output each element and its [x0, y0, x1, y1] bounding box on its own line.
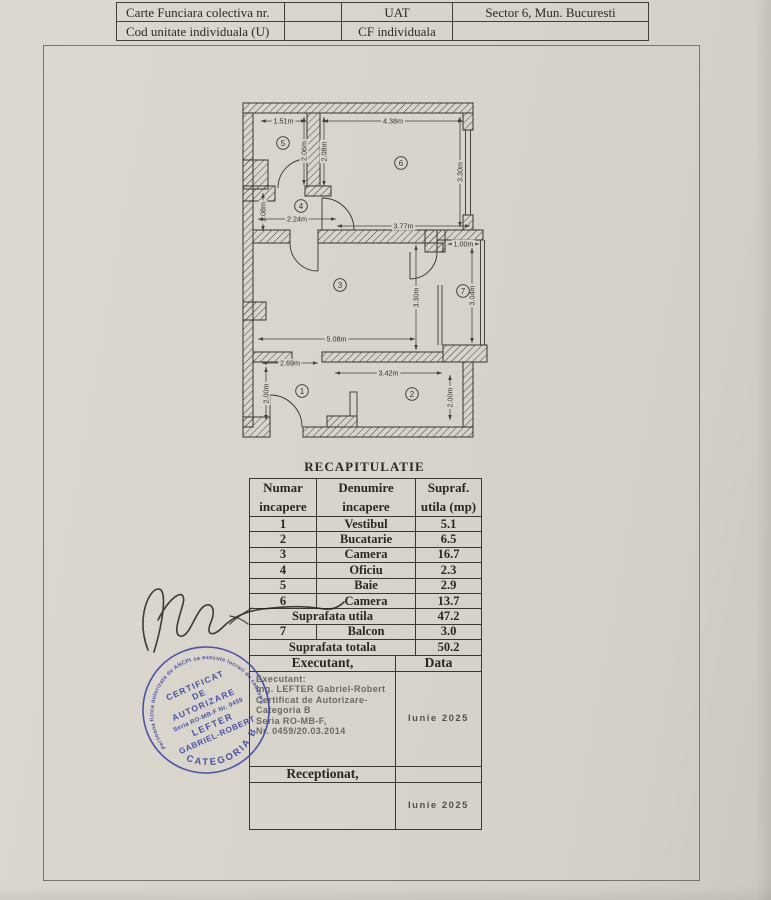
header-cell: CF individuala	[341, 22, 452, 40]
room-number: 1	[300, 387, 305, 396]
header-table: Carte Funciara colectiva nr. UAT Sector …	[116, 2, 649, 41]
recap-cell: 2.9	[415, 579, 481, 593]
dimension-label: 3.77m	[394, 222, 414, 231]
header-cell	[452, 22, 648, 40]
dimension-label: 2.06m	[300, 141, 309, 161]
header-table-row: Carte Funciara colectiva nr. UAT Sector …	[117, 3, 648, 21]
header-cell: Sector 6, Mun. Bucuresti	[452, 3, 648, 21]
recap-cell: 16.7	[415, 548, 481, 562]
paper-edge-shadow	[0, 886, 771, 900]
room-number: 3	[338, 281, 343, 290]
recap-data-row: 3Camera16.7	[250, 547, 481, 562]
dimension-label: 4.38m	[383, 117, 403, 126]
recap-cell: 47.2	[415, 609, 481, 623]
dimension-label: 5.08m	[327, 335, 347, 344]
dimension-label: 3.30m	[456, 162, 465, 182]
recap-cell: Denumire incapere	[316, 479, 415, 516]
dimension-label: 3.30m	[412, 288, 421, 308]
recap-cell: Numar incapere	[250, 479, 316, 516]
date-value: Iunie 2025	[408, 800, 469, 811]
room-number: 5	[281, 139, 286, 148]
date-cell: Iunie 2025	[395, 672, 481, 766]
dimension-label: 2.08m	[320, 142, 329, 162]
recap-cell: 5.1	[415, 517, 481, 531]
recap-cell: 3.0	[415, 625, 481, 639]
data-header: Data	[395, 656, 481, 671]
recap-header-row: Numar incapereDenumire incapereSupraf. u…	[250, 479, 481, 516]
recap-cell: Supraf. utila (mp)	[415, 479, 481, 516]
recap-data-row: 4Oficiu2.3	[250, 562, 481, 577]
header-cell: Cod unitate individuala (U)	[117, 22, 284, 40]
header-cell	[284, 22, 341, 40]
header-table-row: Cod unitate individuala (U) CF individua…	[117, 21, 648, 40]
dimension-label: 2.00m	[446, 388, 455, 408]
recap-cell: 2.3	[415, 563, 481, 577]
dimension-label: 2.24m	[287, 215, 307, 224]
recap-cell: 13.7	[415, 594, 481, 608]
recap-cell: Bucatarie	[316, 532, 415, 546]
recap-cell: Oficiu	[316, 563, 415, 577]
dimension-label: 2.00m	[262, 384, 271, 404]
room-number: 4	[299, 202, 304, 211]
dimension-label: 1.51m	[274, 117, 294, 126]
date-value: Iunie 2025	[408, 713, 469, 724]
recap-cell: 3	[250, 548, 316, 562]
paper-edge-shadow	[755, 0, 771, 900]
header-cell: UAT	[341, 3, 452, 21]
date-cell: Iunie 2025	[395, 783, 481, 829]
receptionat-body-row: Iunie 2025	[250, 782, 481, 829]
header-cell	[284, 3, 341, 21]
room-number: 7	[461, 287, 466, 296]
receptionat-header-row: Receptionat,	[250, 766, 481, 782]
plan-annotations: 1.51m4.38m2.06m2.08m3.30m1.08m2.24m3.77m…	[258, 117, 479, 420]
recap-cell: 6.5	[415, 532, 481, 546]
recap-cell: Vestibul	[316, 517, 415, 531]
empty-cell	[250, 783, 395, 829]
recap-cell: 50.2	[415, 640, 481, 654]
recap-data-row: 1Vestibul5.1	[250, 516, 481, 531]
executant-body-row: Executant:Ing. LEFTER Gabriel-RobertCert…	[250, 671, 481, 766]
dimension-label: 3.42m	[379, 369, 399, 378]
room-number: 6	[399, 159, 404, 168]
floor-plan: 1.51m4.38m2.06m2.08m3.30m1.08m2.24m3.77m…	[243, 103, 491, 440]
recap-cell: Camera	[316, 548, 415, 562]
header-cell: Carte Funciara colectiva nr.	[117, 3, 284, 21]
pen-mark	[228, 604, 254, 628]
recap-data-row: 2Bucatarie6.5	[250, 531, 481, 546]
recap-cell: 2	[250, 532, 316, 546]
dimension-label: 1.00m	[454, 240, 474, 249]
empty-cell	[395, 767, 481, 782]
recap-title: RECAPITULATIE	[249, 459, 480, 475]
recap-cell: 1	[250, 517, 316, 531]
recap-cell: 4	[250, 563, 316, 577]
room-number: 2	[410, 390, 415, 399]
authorization-stamp: Persoana fizica autorizata de ANCPI sa e…	[132, 636, 280, 784]
dimension-label: 2.69m	[280, 359, 300, 368]
